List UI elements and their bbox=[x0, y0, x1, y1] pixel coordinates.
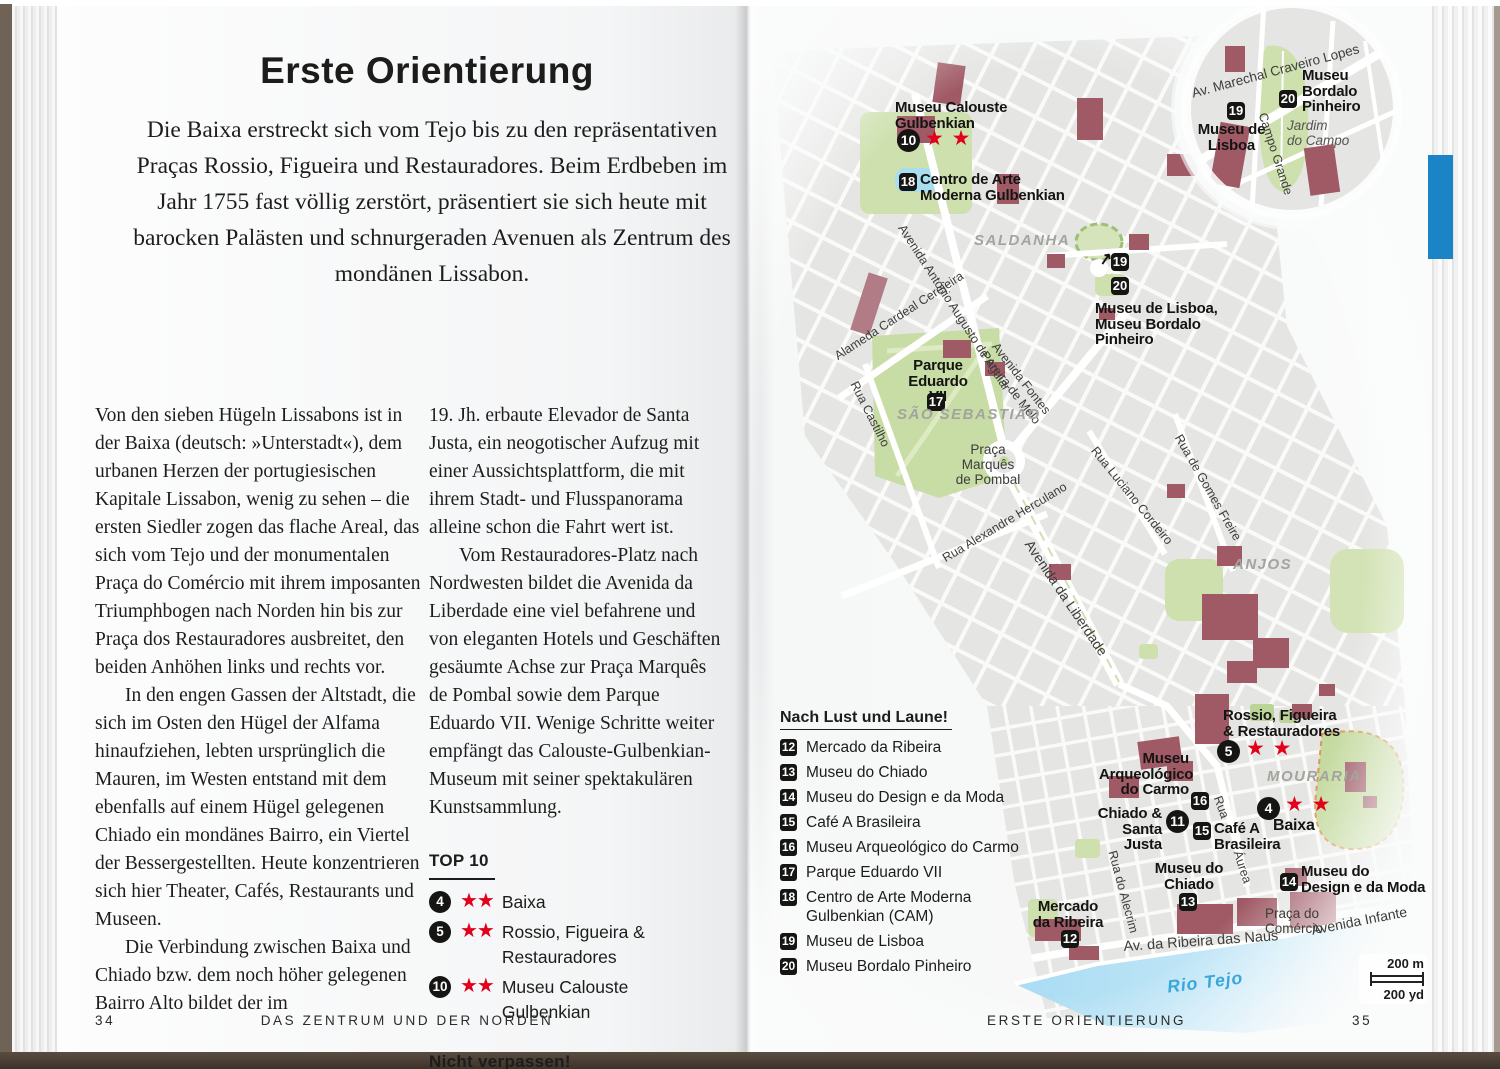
map-label-museu-do-chiado: Museu do Chiado bbox=[1153, 861, 1225, 892]
legend-item: 17Parque Eduardo VII bbox=[780, 863, 1040, 882]
scale-bar-imperial bbox=[1370, 981, 1424, 983]
top10-heading: TOP 10 bbox=[429, 847, 495, 880]
page-title: Erste Orientierung bbox=[82, 50, 772, 92]
star-rating: ★ ★ bbox=[1246, 736, 1293, 761]
dont-miss-heading: Nicht verpassen! bbox=[429, 1048, 577, 1069]
number-badge: 12 bbox=[780, 739, 797, 756]
number-badge: 5 bbox=[429, 921, 451, 943]
number-badge: 19 bbox=[780, 933, 797, 950]
map-marker-20-inset: 20 bbox=[1279, 90, 1297, 108]
legend-label: Museu Arqueológico do Carmo bbox=[806, 838, 1019, 857]
intro-paragraph: Die Baixa erstreckt sich vom Tejo bis zu… bbox=[122, 112, 742, 292]
map-label-museu-design: Museu do Design e da Moda bbox=[1301, 864, 1425, 895]
left-page: Erste Orientierung Die Baixa erstreckt s… bbox=[57, 6, 747, 1052]
sight-name: Rossio, Figueira & Restauradores bbox=[502, 920, 645, 970]
legend-label: Museu de Lisboa bbox=[806, 932, 924, 951]
map-label-baixa: Baixa bbox=[1273, 818, 1315, 834]
section-footer: ERSTE ORIENTIERUNG bbox=[987, 1013, 1186, 1028]
legend-label: Parque Eduardo VII bbox=[806, 863, 942, 882]
book-cover-left-edge bbox=[0, 4, 12, 1062]
map-marker-11: 11 bbox=[1166, 810, 1189, 833]
map-marker-5: 5 bbox=[1217, 740, 1240, 763]
legend-label: Café A Brasileira bbox=[806, 813, 921, 832]
map-marker-15: 15 bbox=[1193, 822, 1211, 840]
map-marker-16: 16 bbox=[1191, 792, 1209, 810]
page-stack-left bbox=[12, 6, 57, 1054]
body-column-1: Von den sieben Hügeln Lissabons ist in d… bbox=[95, 402, 422, 1018]
number-badge: 14 bbox=[780, 789, 797, 806]
page-number: 34 bbox=[95, 1013, 115, 1028]
map-marker-10: 10 bbox=[897, 129, 920, 152]
legend-label: Centro de Arte Moderna Gulbenkian (CAM) bbox=[806, 888, 971, 926]
number-badge: 4 bbox=[429, 891, 451, 913]
map-label-cafe-brasileira: Café A Brasileira bbox=[1214, 821, 1280, 852]
book-cover-bottom bbox=[0, 1052, 1500, 1069]
map-marker-12: 12 bbox=[1061, 930, 1079, 948]
star-rating: ★ ★ bbox=[1285, 792, 1332, 817]
legend-item: 15Café A Brasileira bbox=[780, 813, 1040, 832]
number-badge: 13 bbox=[780, 764, 797, 781]
number-badge: 18 bbox=[780, 889, 797, 906]
map-label-centro-arte-moderna: Centro de Arte Moderna Gulbenkian bbox=[920, 172, 1065, 203]
legend-item: 16Museu Arqueológico do Carmo bbox=[780, 838, 1040, 857]
top10-list: 4 ★★ Baixa 5 ★★ Rossio, Figueira & Resta… bbox=[429, 890, 724, 1025]
number-badge: 15 bbox=[780, 814, 797, 831]
star-rating: ★★ bbox=[460, 890, 494, 912]
map-marker-18: 18 bbox=[899, 173, 917, 191]
list-item: 4 ★★ Baixa bbox=[429, 890, 724, 915]
book-spread: Erste Orientierung Die Baixa erstreckt s… bbox=[0, 0, 1500, 1069]
district-label-mouraria: MOURARIA bbox=[1267, 768, 1362, 785]
scale-imperial: 200 yd bbox=[1362, 987, 1424, 1002]
district-label-sao-sebastiao: SÃO SEBASTIÃO bbox=[897, 406, 1041, 423]
paragraph: Von den sieben Hügeln Lissabons ist in d… bbox=[95, 402, 422, 682]
place-label-pombal: Praça Marquês de Pombal bbox=[943, 442, 1033, 487]
star-rating: ★★ bbox=[460, 975, 494, 997]
map-marker-19-inset: 19 bbox=[1227, 102, 1245, 120]
number-badge: 20 bbox=[780, 958, 797, 975]
map-marker-19: 19 bbox=[1111, 253, 1129, 271]
blue-bookmark-tab bbox=[1428, 155, 1453, 259]
legend-item: 20Museu Bordalo Pinheiro bbox=[780, 957, 1040, 976]
map-legend: Nach Lust und Laune! 12Mercado da Ribeir… bbox=[780, 709, 1040, 982]
district-label-anjos: ANJOS bbox=[1233, 556, 1292, 573]
number-badge: 10 bbox=[429, 976, 451, 998]
paragraph: Die Verbindung zwischen Baixa und Chiado… bbox=[95, 934, 422, 1018]
map-label-mercado-ribeira: Mercado da Ribeira bbox=[1030, 899, 1106, 930]
page-number: 35 bbox=[1352, 1013, 1372, 1028]
legend-label: Museu Bordalo Pinheiro bbox=[806, 957, 971, 976]
legend-item: 12Mercado da Ribeira bbox=[780, 738, 1040, 757]
list-item: 5 ★★ Rossio, Figueira & Restauradores bbox=[429, 920, 724, 970]
star-rating: ★★ bbox=[460, 920, 494, 942]
map-label-chiado-santa-justa: Chiado & Santa Justa bbox=[1088, 806, 1162, 853]
body-column-2: 19. Jh. erbaute Elevador de Santa Justa,… bbox=[429, 402, 724, 1069]
paragraph: In den engen Gassen der Altstadt, die si… bbox=[95, 682, 422, 934]
chapter-footer: DAS ZENTRUM UND DER NORDEN bbox=[237, 1013, 577, 1028]
map-marker-13: 13 bbox=[1179, 893, 1197, 911]
legend-label: Museu do Design e da Moda bbox=[806, 788, 1004, 807]
map-label-museu-bordalo-inset: Museu Bordalo Pinheiro bbox=[1302, 68, 1360, 115]
place-label-jardim-do-campo: Jardim do Campo bbox=[1287, 118, 1349, 148]
legend-item: 13Museu do Chiado bbox=[780, 763, 1040, 782]
book-cover-right-edge bbox=[1494, 6, 1500, 1054]
number-badge: 17 bbox=[780, 864, 797, 881]
paragraph: Vom Restauradores-Platz nach Nordwesten … bbox=[429, 542, 724, 822]
legend-item: 18Centro de Arte Moderna Gulbenkian (CAM… bbox=[780, 888, 1040, 926]
legend-item: 14Museu do Design e da Moda bbox=[780, 788, 1040, 807]
sight-name: Baixa bbox=[502, 890, 546, 915]
right-page: Museu Calouste Gulbenkian 10 ★ ★ 18 Cent… bbox=[747, 6, 1428, 1052]
paragraph: 19. Jh. erbaute Elevador de Santa Justa,… bbox=[429, 402, 724, 542]
legend-label: Museu do Chiado bbox=[806, 763, 928, 782]
map-marker-14: 14 bbox=[1280, 873, 1298, 891]
district-label-saldanha: SALDANHA bbox=[974, 232, 1070, 249]
map-scale: 200 m 200 yd bbox=[1359, 954, 1427, 1004]
legend-heading: Nach Lust und Laune! bbox=[780, 709, 952, 730]
map-label-rossio: Rossio, Figueira & Restauradores bbox=[1223, 708, 1340, 739]
star-rating: ★ ★ bbox=[925, 126, 972, 151]
scale-metric: 200 m bbox=[1362, 956, 1424, 971]
number-badge: 16 bbox=[780, 839, 797, 856]
legend-label: Mercado da Ribeira bbox=[806, 738, 941, 757]
map-marker-20: 20 bbox=[1111, 277, 1129, 295]
legend-item: 19Museu de Lisboa bbox=[780, 932, 1040, 951]
map-label-carmo: Museu Arqueológico do Carmo bbox=[1099, 751, 1189, 798]
book-gutter-shadow bbox=[735, 6, 761, 1052]
map-label-museu-lisboa-bordalo: Museu de Lisboa, Museu Bordalo Pinheiro bbox=[1095, 301, 1218, 348]
scale-bar-metric bbox=[1370, 975, 1424, 977]
